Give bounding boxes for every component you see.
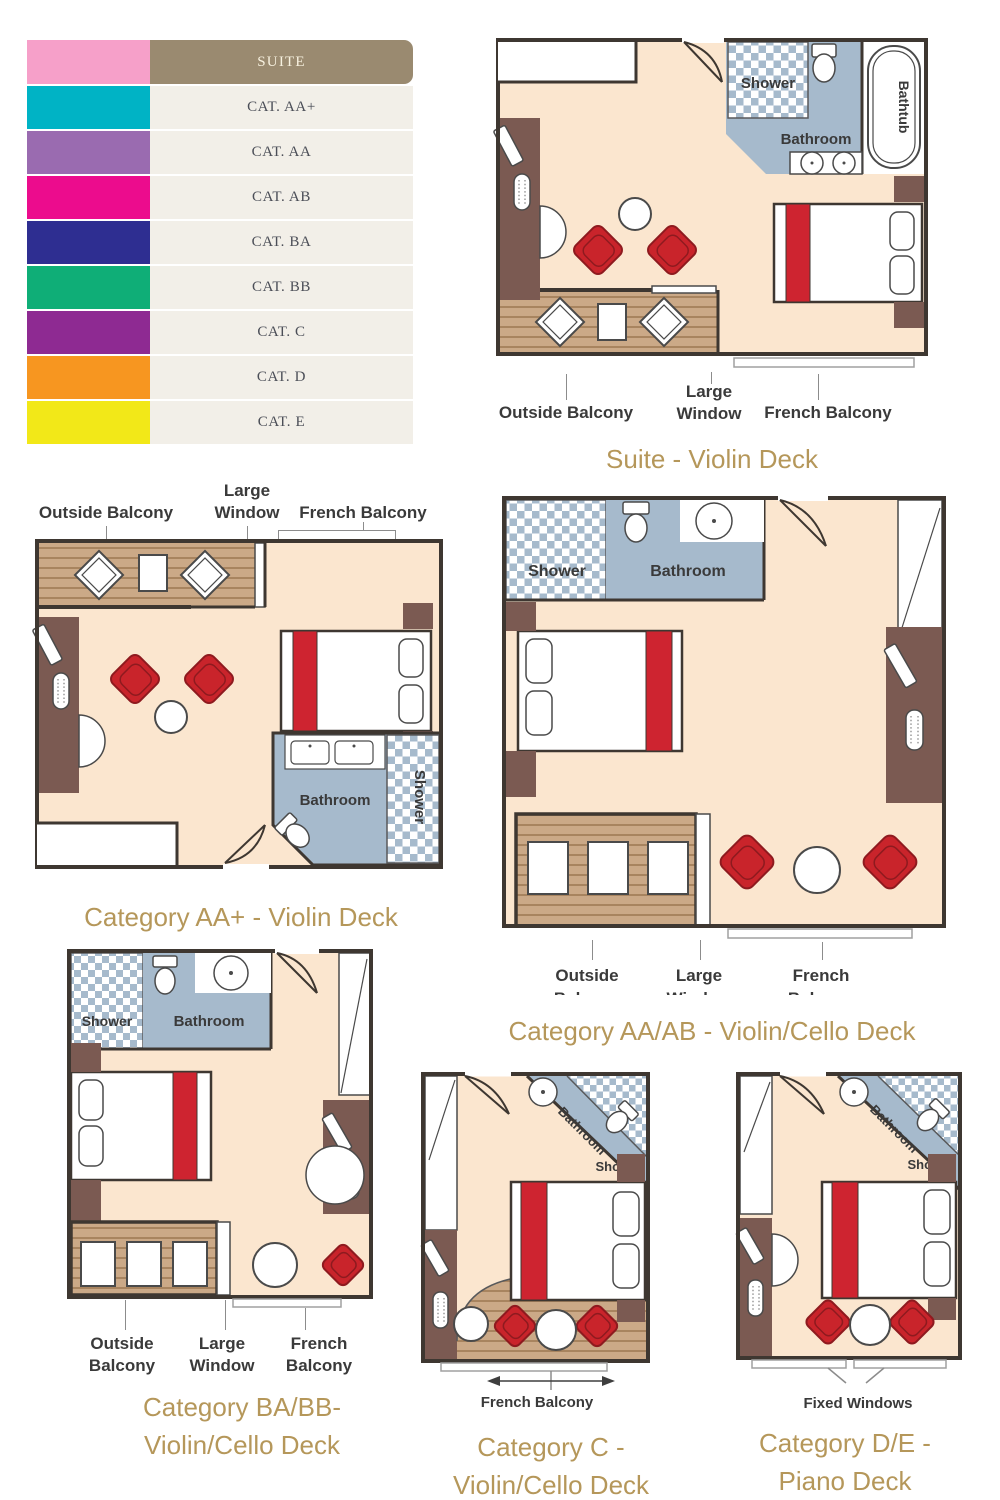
babb-outside-balcony-label: Outside Balcony [89,1333,155,1377]
cat-c-color-swatch [27,311,150,354]
floorplan-category-c: Bathroom Shower [421,1072,653,1392]
bed-runner [786,204,810,302]
closet [425,1076,457,1230]
aaplus-bathroom-label: Bathroom [300,792,371,809]
floorplan-suite: Shower Bathtub Bathroom [496,38,930,383]
suite-outside-balcony-label: Outside Balcony [499,402,633,424]
pillow [613,1244,639,1288]
entry-nook [498,42,636,82]
cat-d-color-swatch [27,356,150,399]
aaab-large-window [696,814,710,926]
round-table [850,1305,890,1345]
radiator [53,673,69,709]
babb-large-window [217,1222,230,1295]
radiator [748,1280,763,1316]
babb-french-balcony-label: French Balcony [286,1333,352,1377]
deck-plan-page: SUITE CAT. AA+ CAT. AA CAT. AB CAT. BA C… [0,0,1000,1500]
legend-label-suite: SUITE [150,40,413,84]
cat-aa-plus-color-swatch [27,86,150,129]
suite-large-window-label: Large Window [677,381,742,425]
round-table [619,198,651,230]
leader-line [106,526,107,539]
toilet [153,956,177,994]
title-category-ba-bb: Category BA/BB- Violin/Cello Deck [143,1388,341,1464]
balcony-chair [81,1242,115,1286]
nightstand [403,603,433,629]
pillow [526,691,552,735]
floorplan-category-de: Bathroom Shower [736,1072,964,1385]
title-category-c: Category C - Violin/Cello Deck [453,1428,649,1500]
balcony-chair [648,842,688,894]
nightstand [71,1180,101,1222]
legend-label-cat-aa: CAT. AA [150,131,413,174]
legend-label-cat-c: CAT. C [150,311,413,354]
legend-row-cat-e: CAT. E [27,401,413,444]
aaplus-shower-label: Shower [411,770,428,824]
radiator [906,710,923,750]
nightstand [71,1043,101,1072]
round-table [155,701,187,733]
leader-line [566,374,567,400]
aaab-bathroom-label: Bathroom [650,563,726,580]
aaab-shower-label: Shower [528,563,586,580]
suite-bathtub-label: Bathtub [896,81,912,134]
legend-row-cat-aa: CAT. AA [27,131,413,174]
legend-row-cat-c: CAT. C [27,311,413,354]
cat-ba-color-swatch [27,221,150,264]
suite-bathroom-label: Bathroom [781,131,852,148]
entry-nook [37,823,177,865]
legend-label-cat-bb: CAT. BB [150,266,413,309]
leader-line [592,940,593,960]
legend-label-cat-d: CAT. D [150,356,413,399]
radiator [433,1292,448,1328]
aaab-french-balcony-label: French Balcony [771,964,871,995]
leader-line [822,942,823,960]
bed-runner [521,1182,547,1300]
french-balcony-rail [441,1363,607,1371]
round-table [536,1310,576,1350]
pillow [526,639,552,683]
suite-color-swatch [27,40,150,84]
legend-row-cat-aa-plus: CAT. AA+ [27,86,413,129]
suite-shower-label: Shower [741,75,795,92]
cat-e-color-swatch [27,401,150,444]
babb-shower [71,953,143,1049]
nightstand [894,176,926,202]
nightstand [894,302,926,328]
closet [339,953,371,1095]
pillow [399,639,423,677]
pillow [890,256,914,294]
legend-row-cat-bb: CAT. BB [27,266,413,309]
legend-label-cat-e: CAT. E [150,401,413,444]
legend-label-cat-aa-plus: CAT. AA+ [150,86,413,129]
fixed-window-rail [854,1360,946,1368]
de-fixed-windows-label: Fixed Windows [803,1394,912,1413]
title-category-de: Category D/E - Piano Deck [759,1424,931,1500]
legend-row-suite: SUITE [27,40,413,84]
balcony-chair [173,1242,207,1286]
balcony-chair [528,842,568,894]
leader-line [247,526,248,539]
legend-row-cat-ab: CAT. AB [27,176,413,219]
closet [898,500,942,636]
closet [740,1076,772,1214]
floorplan-category-aa-plus: Shower Bathroom [35,539,445,871]
legend-row-cat-d: CAT. D [27,356,413,399]
pillow [924,1190,950,1234]
leader-line [818,374,819,400]
nightstand [617,1300,645,1322]
toilet [623,502,649,542]
balcony-table [139,555,167,591]
nightstand [506,751,536,797]
floorplan-category-ba-bb: Shower Bathroom [67,949,377,1311]
french-balcony-rail [233,1299,341,1307]
bed-runner [646,631,672,751]
aaplus-large-window-label: Large Window [215,480,280,524]
door-swing [306,1146,364,1204]
leader-line [700,940,701,960]
legend-label-cat-ba: CAT. BA [150,221,413,264]
french-balcony-rail [734,358,914,367]
babb-large-window-label: Large Window [190,1333,255,1377]
french-balcony-rail [728,929,912,938]
leader-line [363,522,364,530]
suite-french-balcony-label: French Balcony [764,402,892,424]
bed-runner [293,631,317,731]
babb-bathroom-label: Bathroom [174,1013,245,1030]
suite-large-window [652,286,716,293]
nightstand [928,1154,956,1182]
legend-row-cat-ba: CAT. BA [27,221,413,264]
aaplus-outside-balcony-label: Outside Balcony [39,502,173,524]
pillow [79,1080,103,1120]
aaab-shower [506,500,606,600]
title-category-aa-plus: Category AA+ - Violin Deck [84,898,398,936]
legend-label-cat-ab: CAT. AB [150,176,413,219]
leader-line [125,1300,126,1330]
c-french-balcony-label: French Balcony [481,1393,594,1412]
nightstand [506,602,536,631]
babb-shower-label: Shower [82,1013,133,1029]
nightstand [617,1154,645,1182]
round-table [794,847,840,893]
aaab-large-window-label: Large Window [649,964,749,995]
cat-aa-color-swatch [27,131,150,174]
category-legend: SUITE CAT. AA+ CAT. AA CAT. AB CAT. BA C… [27,40,413,444]
leader-line [225,1300,226,1330]
fixed-window-rail [752,1360,846,1368]
cat-bb-color-swatch [27,266,150,309]
leader-line [305,1308,306,1330]
cat-ab-color-swatch [27,176,150,219]
title-suite: Suite - Violin Deck [606,440,818,478]
aaplus-french-balcony-label: French Balcony [299,502,427,524]
balcony-table [127,1242,161,1286]
bed-runner [832,1182,858,1298]
bed-runner [173,1072,197,1180]
balcony-table [588,842,628,894]
balcony-table [598,304,626,340]
pillow [890,212,914,250]
pillow [79,1126,103,1166]
pillow [399,685,423,723]
title-category-aa-ab: Category AA/AB - Violin/Cello Deck [508,1012,915,1050]
floorplan-category-aa-ab: Shower Bathroom [502,496,948,942]
pillow [613,1192,639,1236]
round-chair [454,1307,488,1341]
round-table [253,1243,297,1287]
radiator [514,174,530,210]
pillow [924,1242,950,1286]
nightstand [928,1298,956,1320]
aaab-outside-balcony-label: Outside Balcony [537,964,637,995]
